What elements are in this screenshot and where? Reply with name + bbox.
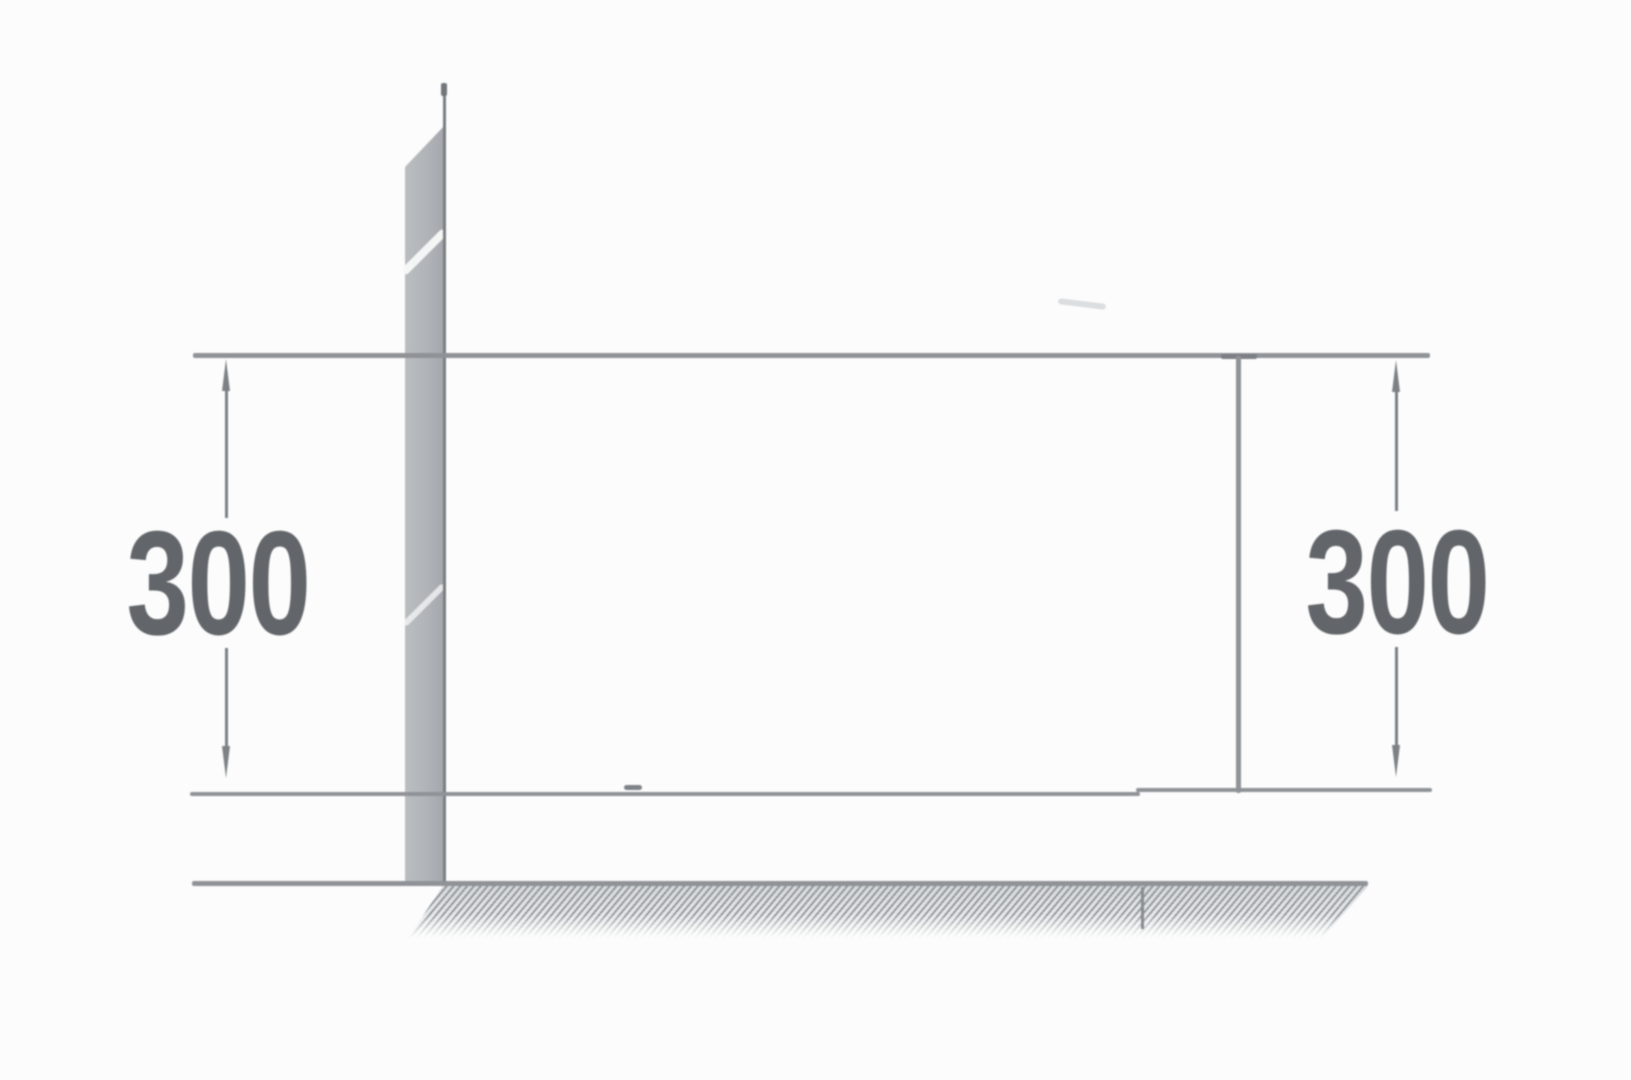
section-drawing: 300 300 xyxy=(0,0,1631,1080)
diagram-canvas: 300 300 xyxy=(0,0,1631,1080)
right-dimension-arrow-down-icon xyxy=(1392,745,1400,777)
left-dimension-arrow-up-icon xyxy=(222,359,230,391)
left-dimension-label: 300 xyxy=(130,520,306,648)
left-dimension-line-upper xyxy=(225,388,228,518)
ground-hatch xyxy=(405,886,1370,938)
wall-face-line xyxy=(443,84,446,886)
right-dimension-arrow-up-icon xyxy=(1392,360,1400,392)
right-dimension-label: 300 xyxy=(1309,519,1485,647)
print-artifact xyxy=(1058,298,1106,310)
lower-reference-line-left xyxy=(190,792,1140,796)
right-boundary-line xyxy=(1236,356,1241,793)
right-dimension-line-upper xyxy=(1395,389,1398,511)
lower-reference-line-tick xyxy=(624,785,642,790)
wall-face-line-cap xyxy=(441,83,447,96)
left-dimension-arrow-down-icon xyxy=(222,746,230,778)
ground-hatch-seam xyxy=(1141,887,1144,929)
lower-reference-line-right xyxy=(1136,788,1432,792)
ground-line xyxy=(192,881,1368,886)
